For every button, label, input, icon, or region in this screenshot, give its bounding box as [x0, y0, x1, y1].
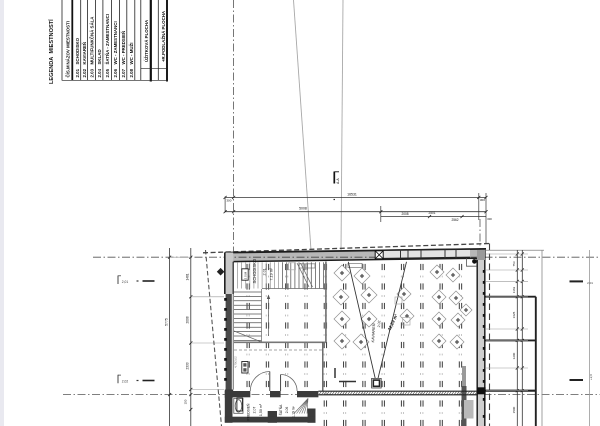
svg-text:2,02: 2,02 — [122, 380, 129, 384]
svg-text:16531: 16531 — [347, 192, 357, 196]
svg-text:4,70/2,02: 4,70/2,02 — [234, 356, 238, 368]
svg-text:2.01: 2.01 — [75, 68, 80, 77]
svg-text:2,01: 2,01 — [587, 281, 593, 285]
svg-text:2501: 2501 — [428, 211, 435, 215]
svg-text:MULTIFUNKČNÁ SÁLA: MULTIFUNKČNÁ SÁLA — [90, 16, 95, 65]
svg-text:1,50 m²: 1,50 m² — [259, 403, 263, 416]
svg-text:300: 300 — [480, 198, 485, 202]
svg-text:2.02: 2.02 — [82, 68, 87, 77]
svg-text:2.07: 2.07 — [121, 68, 126, 77]
svg-text:150: 150 — [184, 399, 188, 404]
svg-text:WC - ZAMESTNANCI: WC - ZAMESTNANCI — [113, 21, 118, 64]
svg-text:WC - MUŽI: WC - MUŽI — [129, 43, 134, 65]
svg-text:SKLAD: SKLAD — [97, 49, 102, 64]
svg-text:5008: 5008 — [299, 207, 307, 211]
svg-text:2.06: 2.06 — [113, 68, 118, 77]
svg-text:2.05: 2.05 — [105, 68, 110, 77]
svg-text:NÁZOV MIESTNOSTI: NÁZOV MIESTNOSTI — [65, 21, 70, 64]
svg-text:7,19 m²: 7,19 m² — [270, 267, 274, 280]
svg-text:+R.PODLAŽNÁ PLOCHA: +R.PODLAŽNÁ PLOCHA — [161, 10, 166, 62]
svg-text:2562: 2562 — [451, 218, 458, 222]
svg-text:300: 300 — [226, 198, 231, 202]
svg-text:2008: 2008 — [401, 212, 408, 216]
svg-text:1200: 1200 — [512, 352, 516, 359]
svg-text:1163: 1163 — [512, 286, 516, 293]
svg-text:2.06: 2.06 — [285, 407, 289, 414]
svg-text:2.03: 2.03 — [90, 68, 95, 77]
svg-text:WC - PREDSIEŇ: WC - PREDSIEŇ — [121, 31, 126, 65]
svg-text:300: 300 — [487, 217, 492, 221]
svg-text:ČÍS.M: ČÍS.M — [65, 65, 70, 78]
svg-text:PREDSIEŇ: PREDSIEŇ — [246, 403, 250, 420]
svg-text:SCHODISKO: SCHODISKO — [252, 259, 257, 284]
svg-text:1500: 1500 — [512, 406, 516, 413]
svg-text:+2,0: +2,0 — [589, 374, 593, 380]
svg-text:2.07: 2.07 — [253, 407, 257, 414]
svg-text:2333: 2333 — [186, 362, 190, 369]
svg-text:SCHODISKO: SCHODISKO — [75, 37, 80, 64]
svg-text:2.02: 2.02 — [377, 320, 381, 327]
svg-text:ÚŽITKOVÁ PLOCHA: ÚŽITKOVÁ PLOCHA — [144, 19, 149, 62]
svg-text:1625: 1625 — [512, 311, 516, 318]
svg-text:ŠATŇA - ZAMESTNANCI: ŠATŇA - ZAMESTNANCI — [105, 14, 110, 65]
svg-text:2.01: 2.01 — [263, 268, 267, 275]
svg-text:2008: 2008 — [186, 316, 190, 323]
svg-text:2.01M: 2.01M — [244, 272, 248, 279]
svg-text:1,19 m²: 1,19 m² — [292, 405, 296, 417]
svg-text:KAVIAREŇ: KAVIAREŇ — [82, 42, 87, 65]
svg-text:2,01: 2,01 — [122, 280, 129, 284]
svg-text:2.08: 2.08 — [129, 68, 134, 77]
svg-text:ŠATŇA: ŠATŇA — [278, 404, 283, 416]
svg-text:KAVIAREŇ: KAVIAREŇ — [370, 323, 376, 342]
svg-text:LEGENDA MIESTNOSTÍ: LEGENDA MIESTNOSTÍ — [47, 19, 55, 84]
svg-text:753: 753 — [512, 261, 516, 266]
svg-text:A-A: A-A — [336, 178, 340, 184]
svg-text:5775: 5775 — [165, 318, 169, 326]
svg-text:2.04: 2.04 — [97, 68, 102, 77]
svg-text:1481: 1481 — [186, 273, 190, 280]
